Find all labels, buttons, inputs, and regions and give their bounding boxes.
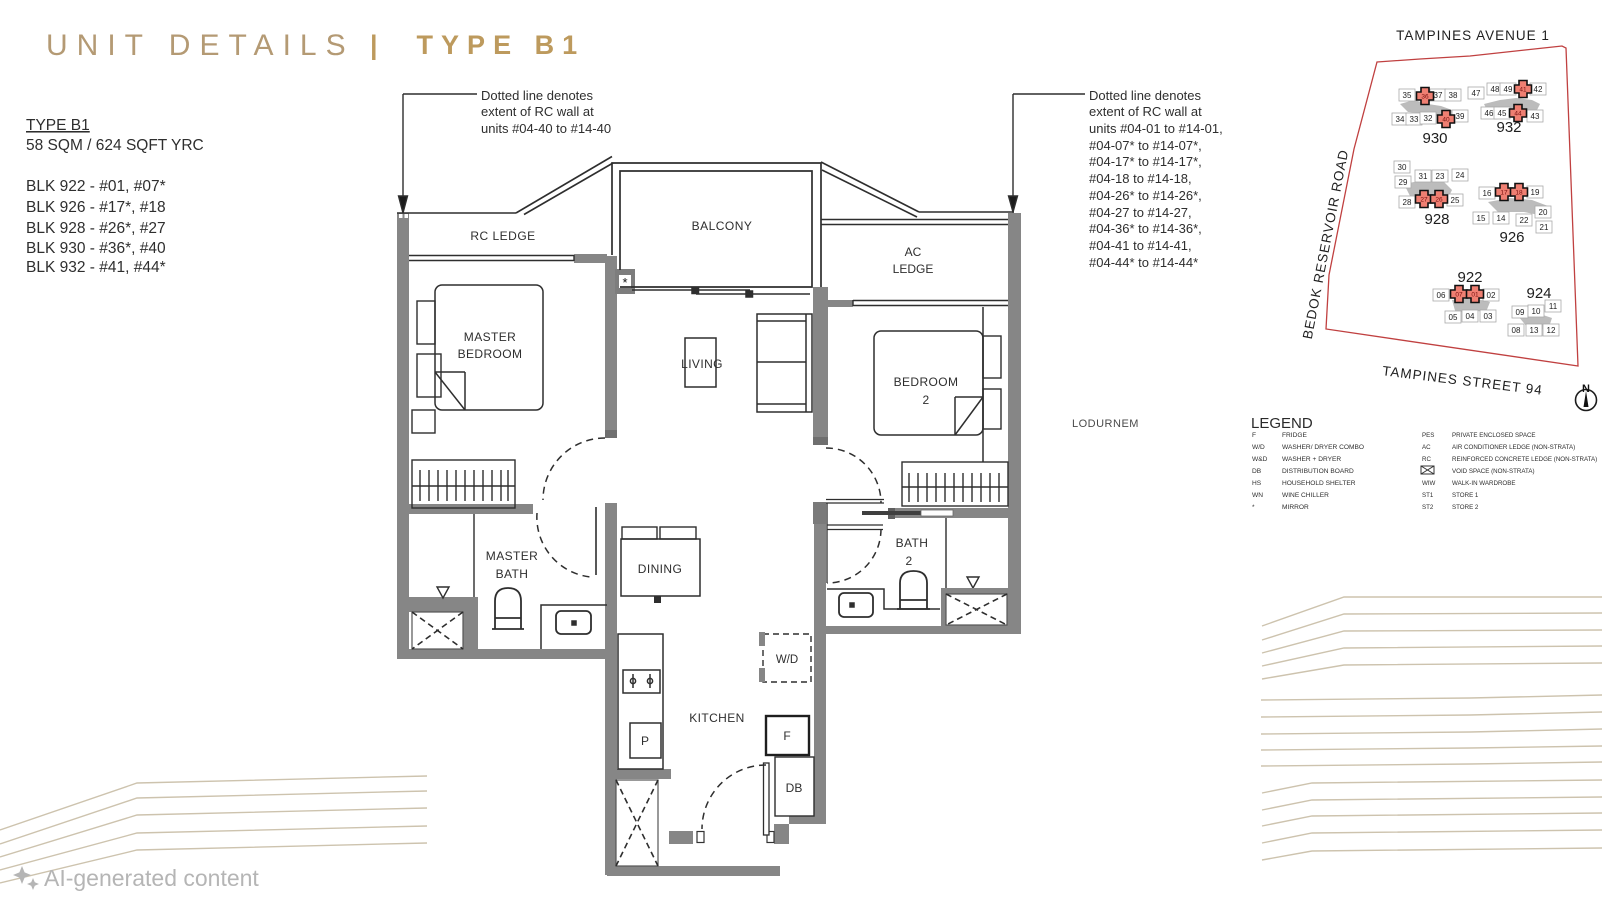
svg-text:04: 04 bbox=[1466, 312, 1475, 321]
svg-text:WASHER/ DRYER COMBO: WASHER/ DRYER COMBO bbox=[1282, 444, 1364, 451]
svg-text:LEGEND: LEGEND bbox=[1251, 415, 1313, 432]
svg-text:*: * bbox=[1252, 504, 1255, 511]
svg-text:33: 33 bbox=[1410, 115, 1419, 124]
svg-text:AI-generated content: AI-generated content bbox=[44, 865, 259, 891]
svg-text:W/D: W/D bbox=[1252, 444, 1265, 451]
svg-text:932: 932 bbox=[1496, 119, 1521, 136]
svg-text:20: 20 bbox=[1539, 208, 1548, 217]
svg-text:25: 25 bbox=[1451, 196, 1460, 205]
svg-text:926: 926 bbox=[1499, 229, 1524, 246]
svg-text:WINE CHILLER: WINE CHILLER bbox=[1282, 492, 1329, 499]
svg-text:31: 31 bbox=[1419, 172, 1428, 181]
svg-text:03: 03 bbox=[1484, 312, 1493, 321]
svg-text:WASHER + DRYER: WASHER + DRYER bbox=[1282, 456, 1341, 463]
svg-text:BALCONY: BALCONY bbox=[692, 219, 753, 233]
svg-text:AC: AC bbox=[1422, 444, 1431, 451]
svg-text:HOUSEHOLD SHELTER: HOUSEHOLD SHELTER bbox=[1282, 480, 1356, 487]
svg-text:STORE 1: STORE 1 bbox=[1452, 492, 1479, 499]
svg-text:ST2: ST2 bbox=[1422, 504, 1434, 511]
svg-text:11: 11 bbox=[1549, 302, 1558, 311]
svg-text:#04-44* to #14-44*: #04-44* to #14-44* bbox=[1089, 255, 1198, 270]
svg-text:26: 26 bbox=[1435, 197, 1443, 204]
svg-text:#04-17* to #14-17*,: #04-17* to #14-17*, bbox=[1089, 154, 1202, 169]
svg-text:BEDOK RESERVOIR ROAD: BEDOK RESERVOIR ROAD bbox=[1300, 148, 1352, 340]
svg-text:#04-27 to #14-27,: #04-27 to #14-27, bbox=[1089, 205, 1192, 220]
svg-text:37: 37 bbox=[1434, 91, 1443, 100]
svg-text:21: 21 bbox=[1540, 223, 1549, 232]
svg-text:extent of RC wall at: extent of RC wall at bbox=[1089, 104, 1202, 119]
svg-text:44: 44 bbox=[1514, 111, 1522, 118]
svg-text:23: 23 bbox=[1436, 172, 1445, 181]
svg-text:#04-26* to #14-26*,: #04-26* to #14-26*, bbox=[1089, 188, 1202, 203]
svg-text:PRIVATE ENCLOSED SPACE: PRIVATE ENCLOSED SPACE bbox=[1452, 432, 1536, 439]
svg-text:35: 35 bbox=[1403, 91, 1412, 100]
svg-text:BLK 926 - #17*, #18: BLK 926 - #17*, #18 bbox=[26, 199, 166, 216]
svg-text:WIW: WIW bbox=[1422, 480, 1436, 487]
svg-text:MASTER: MASTER bbox=[464, 330, 516, 344]
svg-text:58 SQM / 624 SQFT YRC: 58 SQM / 624 SQFT YRC bbox=[26, 137, 204, 154]
svg-text:WN: WN bbox=[1252, 492, 1263, 499]
svg-text:DB: DB bbox=[1252, 468, 1262, 475]
svg-text:08: 08 bbox=[1512, 326, 1521, 335]
svg-text:FRIDGE: FRIDGE bbox=[1282, 432, 1308, 439]
svg-text:ST1: ST1 bbox=[1422, 492, 1434, 499]
svg-text:units #04-40 to #14-40: units #04-40 to #14-40 bbox=[481, 121, 611, 136]
svg-text:46: 46 bbox=[1485, 109, 1494, 118]
svg-text:14: 14 bbox=[1497, 214, 1506, 223]
svg-text:F: F bbox=[1252, 432, 1256, 439]
svg-text:RC LEDGE: RC LEDGE bbox=[470, 229, 535, 243]
svg-text:W/D: W/D bbox=[776, 654, 798, 666]
svg-text:17: 17 bbox=[1500, 190, 1508, 197]
svg-text:UNIT DETAILS: UNIT DETAILS bbox=[46, 29, 355, 62]
svg-text:BLK 932 - #41, #44*: BLK 932 - #41, #44* bbox=[26, 259, 166, 276]
svg-text:36: 36 bbox=[1421, 94, 1429, 101]
svg-text:43: 43 bbox=[1531, 112, 1540, 121]
svg-text:924: 924 bbox=[1526, 285, 1551, 302]
svg-text:TAMPINES AVENUE 1: TAMPINES AVENUE 1 bbox=[1396, 28, 1550, 43]
svg-text:PES: PES bbox=[1422, 432, 1434, 439]
svg-text:BLK 930 - #36*, #40: BLK 930 - #36*, #40 bbox=[26, 240, 166, 257]
svg-text:BATH: BATH bbox=[496, 567, 529, 581]
svg-text:DISTRIBUTION BOARD: DISTRIBUTION BOARD bbox=[1282, 468, 1354, 475]
svg-text:AC: AC bbox=[905, 245, 922, 259]
svg-text:40: 40 bbox=[1442, 117, 1450, 124]
svg-text:#04-07* to #14-07*,: #04-07* to #14-07*, bbox=[1089, 138, 1202, 153]
svg-text:HS: HS bbox=[1252, 480, 1262, 487]
svg-text:Dotted line denotes: Dotted line denotes bbox=[1089, 88, 1202, 103]
svg-text:24: 24 bbox=[1456, 171, 1465, 180]
svg-text:18: 18 bbox=[1515, 190, 1523, 197]
svg-text:47: 47 bbox=[1472, 89, 1481, 98]
svg-text:922: 922 bbox=[1457, 269, 1482, 286]
svg-text:RC: RC bbox=[1422, 456, 1431, 463]
svg-text:10: 10 bbox=[1532, 307, 1541, 316]
svg-text:MASTER: MASTER bbox=[486, 549, 538, 563]
svg-text:TAMPINES STREET 94: TAMPINES STREET 94 bbox=[1381, 363, 1543, 398]
svg-text:29: 29 bbox=[1399, 178, 1408, 187]
svg-text:BATH: BATH bbox=[896, 536, 929, 550]
svg-text:34: 34 bbox=[1396, 115, 1405, 124]
svg-text:WALK-IN WARDROBE: WALK-IN WARDROBE bbox=[1452, 480, 1515, 487]
svg-text:KITCHEN: KITCHEN bbox=[689, 711, 744, 725]
svg-text:06: 06 bbox=[1437, 291, 1446, 300]
svg-text:930: 930 bbox=[1422, 130, 1447, 147]
svg-text:STORE 2: STORE 2 bbox=[1452, 504, 1479, 511]
svg-text:38: 38 bbox=[1449, 91, 1458, 100]
svg-text:W&D: W&D bbox=[1252, 456, 1268, 463]
svg-text:12: 12 bbox=[1547, 326, 1556, 335]
svg-text:BLK 928 - #26*, #27: BLK 928 - #26*, #27 bbox=[26, 220, 166, 237]
svg-text:| TYPE B1: | TYPE B1 bbox=[370, 30, 585, 60]
svg-text:#04-36* to #14-36*,: #04-36* to #14-36*, bbox=[1089, 221, 1202, 236]
svg-text:AIR CONDITIONER LEDGE (NON-STR: AIR CONDITIONER LEDGE (NON-STRATA) bbox=[1452, 444, 1575, 451]
svg-text:LODURNEM: LODURNEM bbox=[1072, 418, 1139, 430]
svg-text:39: 39 bbox=[1456, 112, 1465, 121]
svg-text:30: 30 bbox=[1398, 163, 1407, 172]
svg-text:MIRROR: MIRROR bbox=[1282, 504, 1309, 511]
svg-text:07: 07 bbox=[1455, 292, 1463, 299]
svg-text:BLK 922 - #01, #07*: BLK 922 - #01, #07* bbox=[26, 178, 166, 195]
svg-text:19: 19 bbox=[1531, 188, 1540, 197]
svg-text:28: 28 bbox=[1403, 198, 1412, 207]
svg-text:#04-41 to #14-41,: #04-41 to #14-41, bbox=[1089, 238, 1192, 253]
svg-text:LEDGE: LEDGE bbox=[893, 262, 934, 276]
svg-text:2: 2 bbox=[922, 393, 929, 407]
svg-text:TYPE B1: TYPE B1 bbox=[26, 117, 90, 134]
svg-text:22: 22 bbox=[1520, 216, 1529, 225]
svg-text:VOID SPACE (NON-STRATA): VOID SPACE (NON-STRATA) bbox=[1452, 468, 1535, 475]
svg-text:45: 45 bbox=[1498, 109, 1507, 118]
svg-text:49: 49 bbox=[1504, 85, 1513, 94]
svg-text:DB: DB bbox=[786, 781, 803, 795]
svg-text:2: 2 bbox=[905, 554, 912, 568]
svg-text:09: 09 bbox=[1516, 308, 1525, 317]
svg-text:01: 01 bbox=[1471, 292, 1479, 299]
svg-text:32: 32 bbox=[1424, 114, 1433, 123]
svg-text:41: 41 bbox=[1519, 87, 1527, 94]
svg-text:P: P bbox=[641, 734, 649, 748]
svg-text:F: F bbox=[783, 729, 790, 743]
svg-text:#04-18 to #14-18,: #04-18 to #14-18, bbox=[1089, 171, 1192, 186]
svg-text:BEDROOM: BEDROOM bbox=[894, 375, 959, 389]
svg-text:REINFORCED CONCRETE LEDGE (NON: REINFORCED CONCRETE LEDGE (NON-STRATA) bbox=[1452, 456, 1597, 463]
svg-text:48: 48 bbox=[1491, 85, 1500, 94]
svg-text:Dotted line denotes: Dotted line denotes bbox=[481, 88, 594, 103]
svg-text:02: 02 bbox=[1487, 291, 1496, 300]
svg-text:16: 16 bbox=[1483, 189, 1492, 198]
svg-text:05: 05 bbox=[1449, 313, 1458, 322]
svg-text:13: 13 bbox=[1530, 326, 1539, 335]
svg-text:42: 42 bbox=[1534, 85, 1543, 94]
svg-text:extent of RC wall at: extent of RC wall at bbox=[481, 104, 594, 119]
svg-text:units #04-01 to #14-01,: units #04-01 to #14-01, bbox=[1089, 121, 1223, 136]
svg-text:BEDROOM: BEDROOM bbox=[458, 347, 523, 361]
svg-text:DINING: DINING bbox=[638, 562, 682, 576]
svg-text:15: 15 bbox=[1477, 214, 1486, 223]
svg-text:928: 928 bbox=[1424, 211, 1449, 228]
svg-text:27: 27 bbox=[1420, 197, 1428, 204]
